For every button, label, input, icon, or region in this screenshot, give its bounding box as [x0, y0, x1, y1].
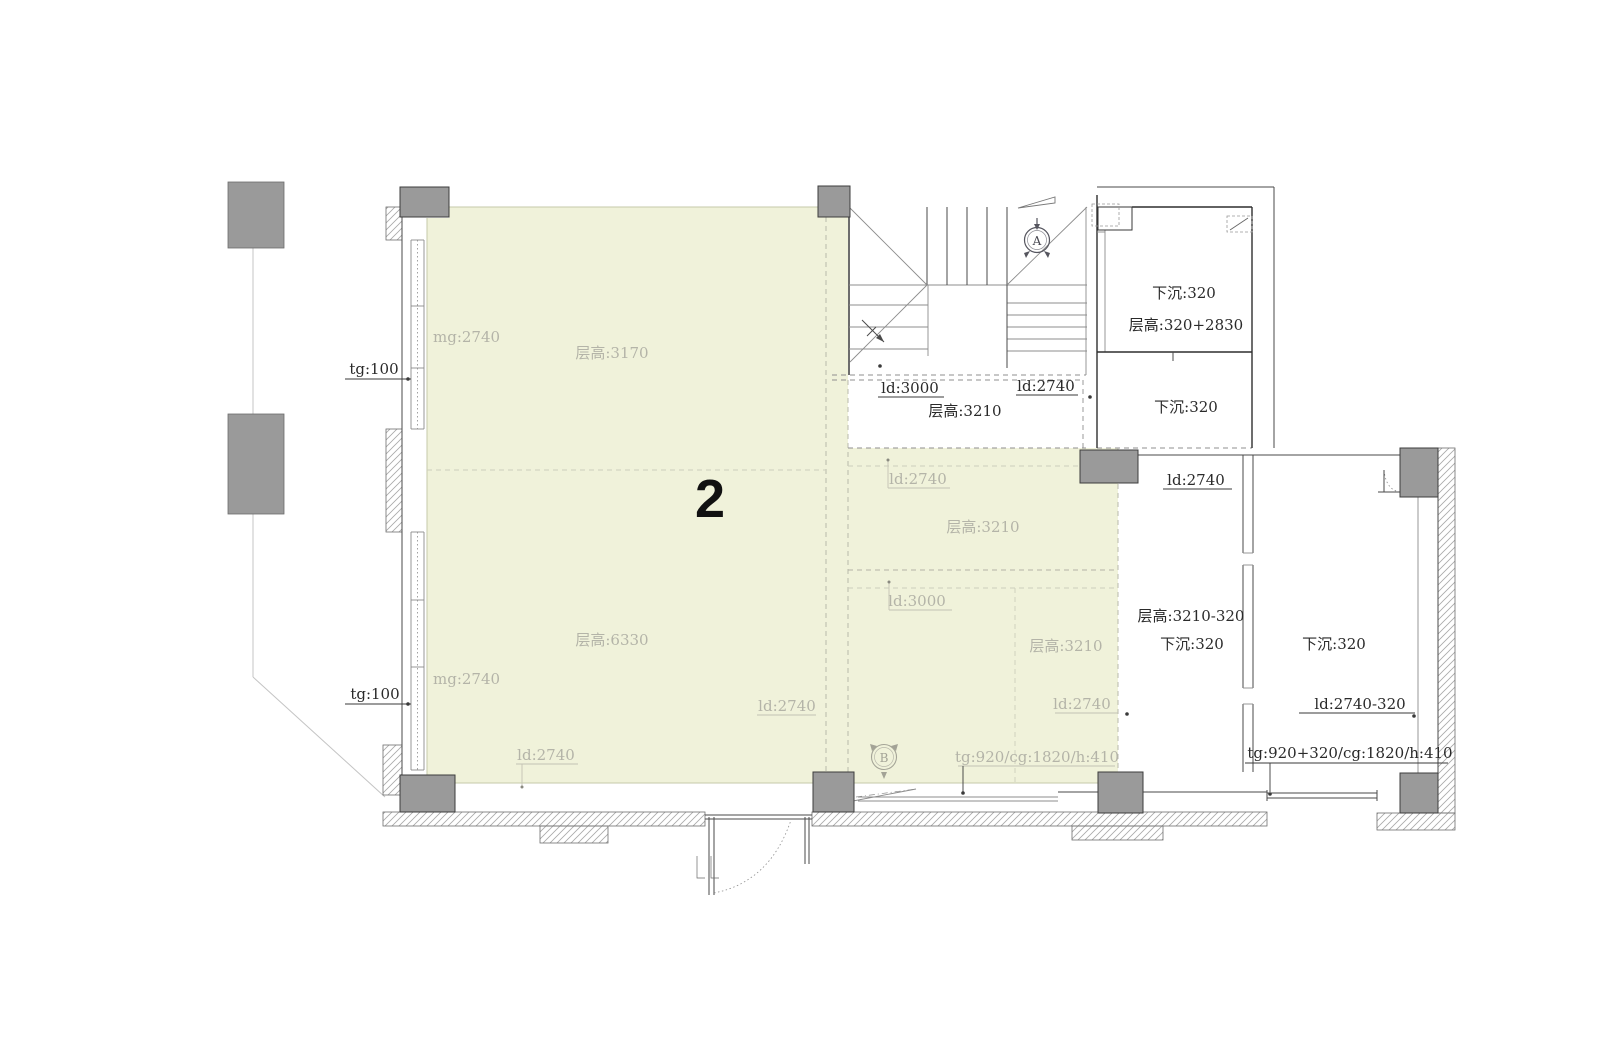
window-lower-left — [411, 532, 424, 770]
boundary-column-top — [228, 182, 284, 248]
corner-niche — [1378, 470, 1400, 492]
label-cg3210-minus320: 层高:3210-320 — [1138, 607, 1245, 625]
label-ld2740-right-top: ld:2740 — [889, 470, 947, 488]
label-ld2740-left-mid: ld:2740 — [758, 697, 816, 715]
label-ld2740-lower-right: ld:2740 — [1167, 471, 1225, 489]
label-xiachen320-top: 下沉:320 — [1152, 284, 1216, 302]
label-ld2740-bottom-left: ld:2740 — [517, 746, 575, 764]
floor-plan-canvas: A B — [0, 0, 1600, 1040]
bottom-right-window — [1267, 790, 1377, 801]
staircase — [832, 197, 1087, 375]
boundary-column-mid — [228, 414, 284, 514]
site-boundary — [228, 182, 385, 797]
label-tg920-320: tg:920+320/cg:1820/h:410 — [1247, 744, 1452, 762]
middle-partition-wall — [1243, 455, 1253, 772]
entry-notch — [1092, 204, 1132, 230]
door-swing-arc — [714, 820, 791, 893]
column-bottom-right-inner — [1098, 772, 1143, 813]
column-right-bottom — [1400, 773, 1438, 813]
column-mid-right — [1080, 450, 1138, 483]
label-ld2740-right-bottom: ld:2740 — [1053, 695, 1111, 713]
label-cg3210-right-top: 层高:3210 — [946, 518, 1019, 536]
marker-b-letter: B — [880, 751, 889, 765]
elevation-marker-a-icon: A — [1024, 218, 1050, 258]
label-cg3210-right-mid: 层高:3210 — [1029, 637, 1102, 655]
label-cg3170: 层高:3170 — [575, 344, 648, 362]
label-cg320-2830: 层高:320+2830 — [1129, 316, 1243, 334]
column-top-mid — [818, 186, 850, 217]
marker-a-letter: A — [1032, 234, 1042, 248]
column-right-top — [1400, 448, 1438, 497]
threshold-marks — [697, 856, 719, 878]
window-bottom-mid — [858, 797, 1058, 801]
label-cg3210-stair: 层高:3210 — [928, 402, 1001, 420]
label-ld3000-right: ld:3000 — [888, 592, 946, 610]
label-ld3000-stair: ld:3000 — [881, 379, 939, 397]
label-tg100-top: tg:100 — [349, 360, 398, 378]
label-tg920: tg:920/cg:1820/h:410 — [955, 748, 1119, 766]
label-ld2740-minus320: ld:2740-320 — [1314, 695, 1405, 713]
drain-symbol-icon — [1227, 216, 1252, 232]
left-exterior-wall — [383, 207, 424, 812]
label-tg100-bottom: tg:100 — [350, 685, 399, 703]
north-flag-icon — [1018, 197, 1055, 208]
label-mg2740-top: mg:2740 — [433, 328, 500, 346]
ramp-line — [853, 789, 916, 801]
label-mg2740-bottom: mg:2740 — [433, 670, 500, 688]
column-top-left — [400, 187, 449, 217]
window-upper-left — [411, 240, 424, 429]
entry-door — [697, 815, 812, 895]
room-number: 2 — [695, 469, 725, 529]
column-bottom-left — [400, 775, 455, 812]
label-xiachen320-room-right: 下沉:320 — [1302, 635, 1366, 653]
label-xiachen320-room-left: 下沉:320 — [1160, 635, 1224, 653]
label-xiachen320-mid: 下沉:320 — [1154, 398, 1218, 416]
column-bottom-mid — [813, 772, 854, 812]
label-ld2740-stair: ld:2740 — [1017, 377, 1075, 395]
label-cg6330: 层高:6330 — [575, 631, 648, 649]
